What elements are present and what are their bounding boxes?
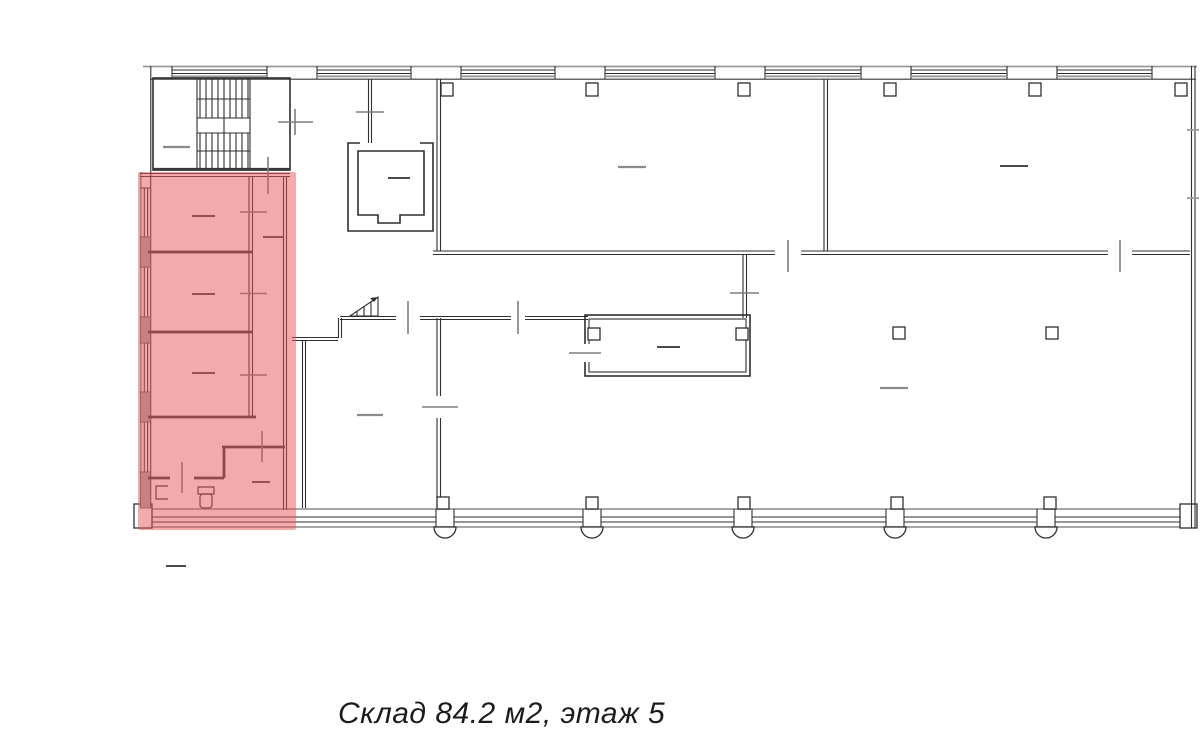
caption: Склад 84.2 м2, этаж 5 [338, 697, 665, 731]
stairwell-outline [153, 78, 290, 170]
column [588, 328, 600, 340]
top-rooms [433, 79, 1190, 272]
column [586, 83, 598, 96]
round-column [884, 527, 906, 538]
room-walls [292, 318, 342, 508]
round-column [1035, 527, 1057, 538]
column [884, 83, 896, 96]
room-right-wall [437, 318, 441, 508]
pier [1037, 510, 1055, 526]
room-divider-wall [824, 79, 828, 251]
small-middle-room [569, 315, 750, 376]
column [1175, 83, 1187, 96]
pier [734, 510, 752, 526]
column [1044, 497, 1056, 509]
column [437, 497, 449, 509]
column [1046, 327, 1058, 339]
room-outline [585, 315, 750, 376]
round-column [434, 527, 456, 538]
columns [437, 83, 1187, 509]
column [893, 327, 905, 339]
round-column [732, 527, 754, 538]
rooms-bottom-wall [433, 251, 1190, 255]
window-glazing [152, 517, 1186, 522]
round-column [581, 527, 603, 538]
steps-treads [357, 302, 371, 316]
pier [886, 510, 904, 526]
column [441, 83, 453, 96]
column [891, 497, 903, 509]
pier [583, 510, 601, 526]
corridor-walls [340, 255, 759, 334]
column [586, 497, 598, 509]
lobby-wall [369, 79, 372, 143]
lower-zone-top-wall [340, 317, 588, 320]
elevator-cab [358, 151, 424, 223]
room-a-left-wall [437, 79, 441, 251]
highlighted-unit-overlay[interactable] [138, 172, 296, 530]
top-window-band [143, 66, 1197, 79]
stairwell [153, 78, 290, 170]
corridor-wall [743, 255, 747, 318]
column [738, 497, 750, 509]
floor-plan [0, 0, 1200, 600]
column [738, 83, 750, 96]
lower-left-room [292, 318, 458, 508]
elevator-shaft [348, 143, 433, 231]
page: Склад 84.2 м2, этаж 5 [0, 0, 1200, 745]
right-exterior-wall [1187, 66, 1199, 528]
column [736, 328, 748, 340]
elevator-lobby [278, 79, 384, 143]
pier [436, 510, 454, 526]
column [1029, 83, 1041, 96]
room-inner-line [589, 319, 746, 372]
wall-lines [1192, 66, 1196, 528]
entrance-steps-icon [350, 297, 378, 316]
elevator [348, 143, 433, 231]
